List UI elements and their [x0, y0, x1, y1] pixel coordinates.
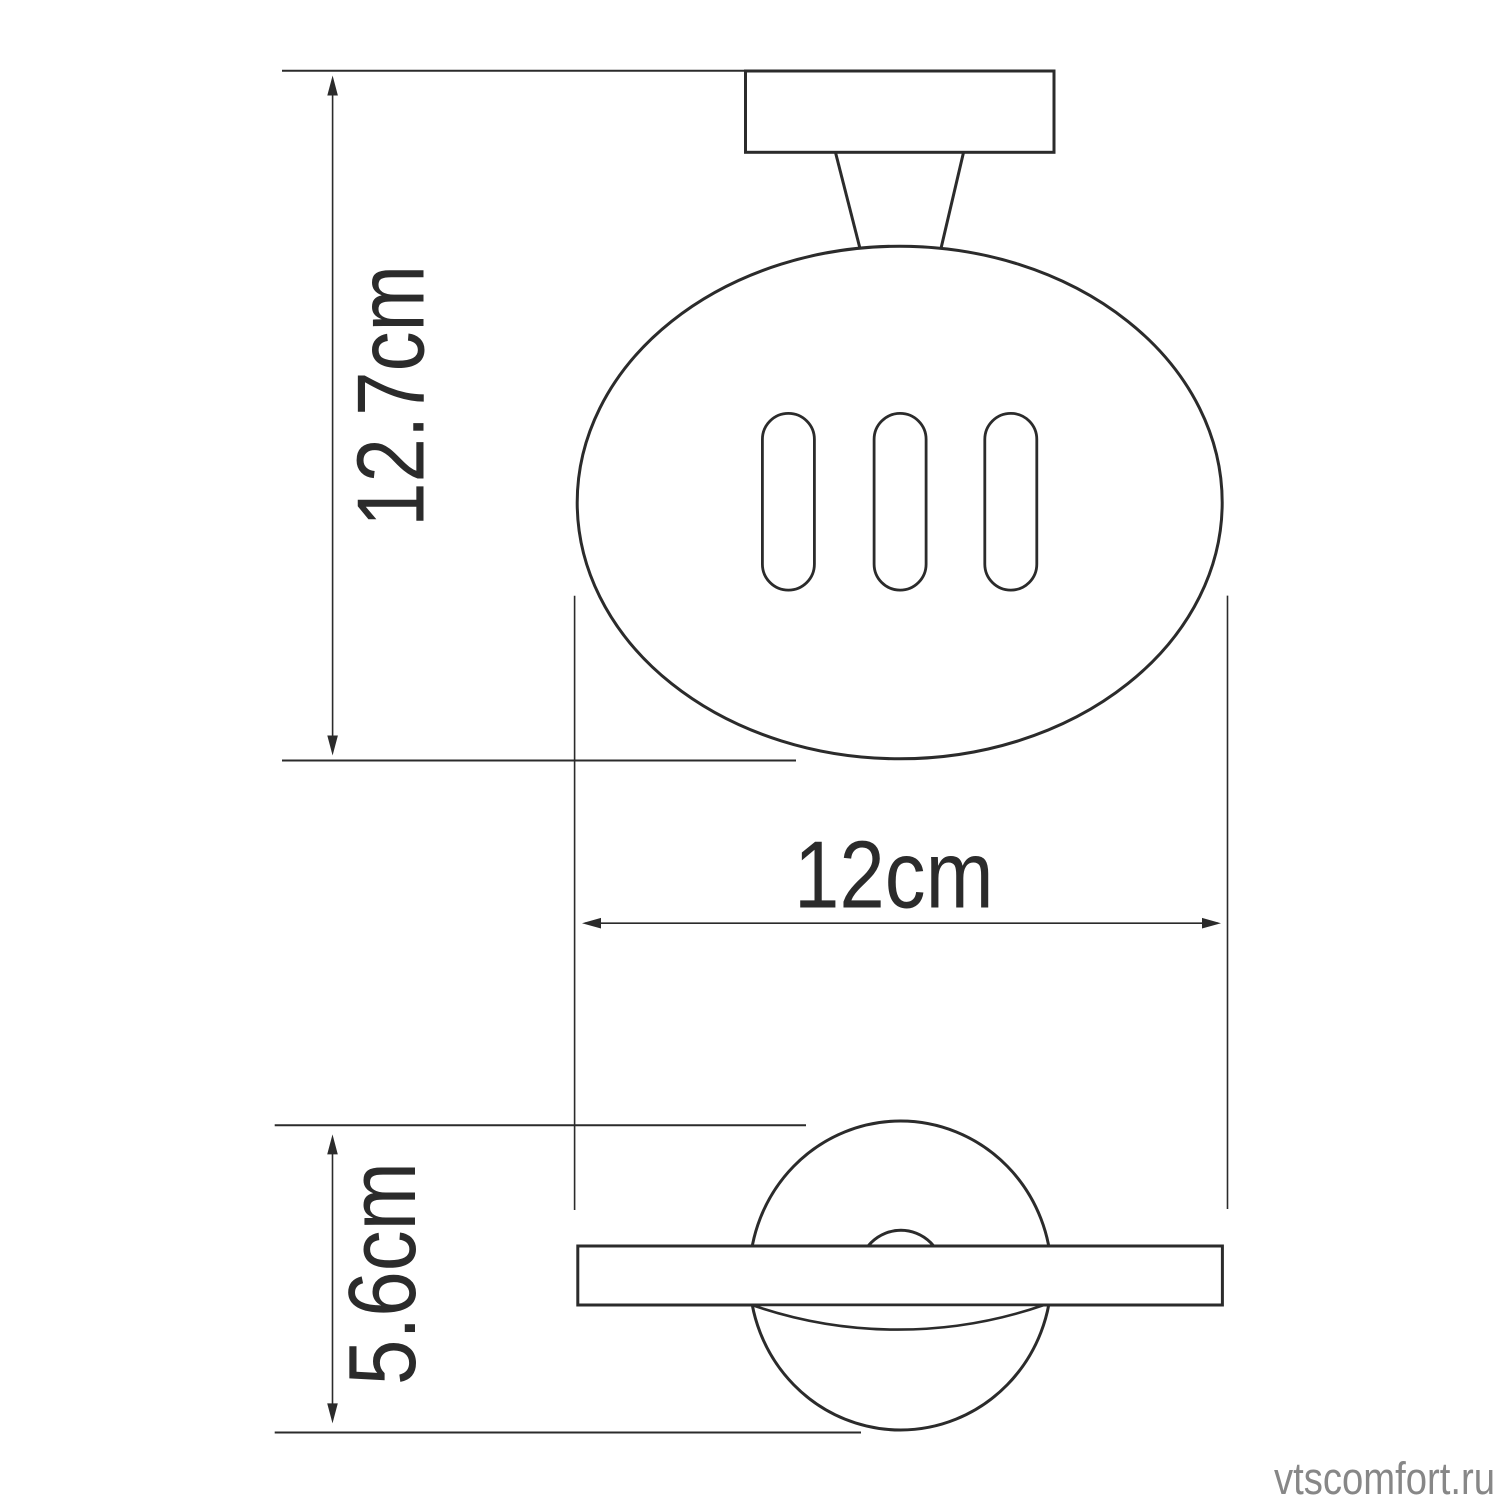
svg-text:vtscomfort.ru: vtscomfort.ru — [1274, 1453, 1495, 1504]
svg-text:12.7cm: 12.7cm — [337, 265, 445, 527]
svg-text:12cm: 12cm — [794, 820, 994, 928]
svg-text:5.6cm: 5.6cm — [328, 1162, 436, 1385]
